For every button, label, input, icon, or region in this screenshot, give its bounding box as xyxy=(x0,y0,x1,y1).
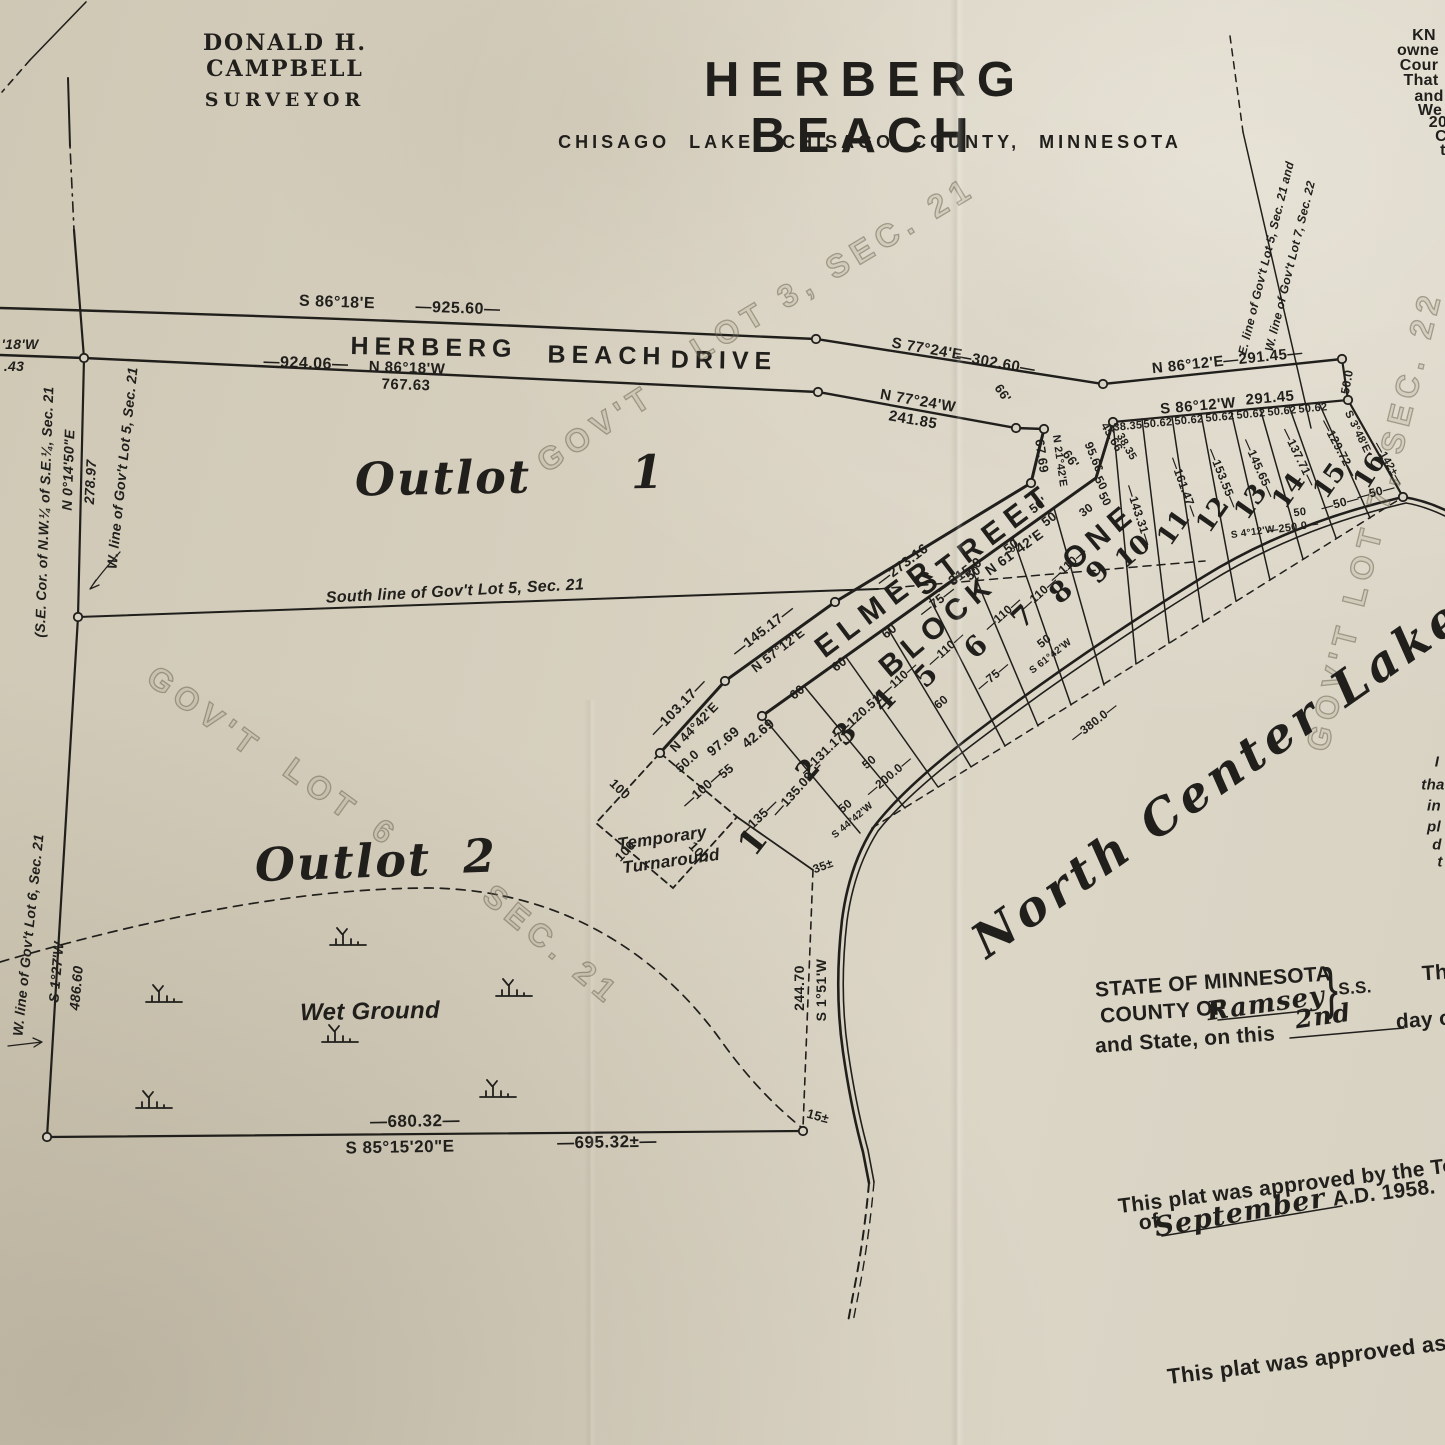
surveyor-name: DONALD H. CAMPBELL xyxy=(120,30,450,82)
meander-line xyxy=(872,497,1403,828)
section-line-dashed xyxy=(1230,36,1243,132)
outlot-creek-boundary xyxy=(803,870,813,1128)
west-line-dashdot xyxy=(70,146,74,230)
leader-arrow-lot6 xyxy=(8,1038,42,1047)
lot-lines-9-16 xyxy=(1113,403,1370,664)
west-line-lot6 xyxy=(47,617,78,1137)
west-line xyxy=(74,230,84,617)
lot-lines-1-8 xyxy=(762,508,1104,833)
turnaround-square xyxy=(596,753,737,888)
bottom-boundary-line xyxy=(47,1131,803,1137)
wet-ground-meander xyxy=(0,888,801,1127)
signature-underlines xyxy=(1162,1010,1404,1236)
shoreline xyxy=(838,497,1445,1183)
survey-nodes xyxy=(43,335,1407,1141)
plat-map: DONALD H. CAMPBELL SURVEYOR HERBERG BEAC… xyxy=(0,0,1445,1445)
marsh-symbols xyxy=(136,928,532,1108)
corner-tick-line xyxy=(30,2,86,60)
lot1-west-line xyxy=(737,817,813,870)
west-line-solid xyxy=(68,78,70,146)
drive-north-line xyxy=(0,308,1342,384)
creek-dashed-inner xyxy=(853,1182,874,1322)
elmer-nw-line xyxy=(660,429,1044,753)
leader-arrow-lot5 xyxy=(90,552,120,589)
drive-south-line xyxy=(0,355,1044,429)
survey-lines-svg xyxy=(0,0,1445,1445)
south-line-lot5 xyxy=(78,589,878,617)
south-line-lot5-dashed xyxy=(878,561,1205,589)
section-line xyxy=(1243,132,1311,428)
plat-subtitle: CHISAGO LAKE, CHISAGO COUNTY, MINNESOTA xyxy=(540,132,1200,153)
surveyor-block: DONALD H. CAMPBELL SURVEYOR xyxy=(120,30,450,111)
corner-dash-line xyxy=(2,60,30,92)
surveyor-title: SURVEYOR xyxy=(120,89,450,111)
